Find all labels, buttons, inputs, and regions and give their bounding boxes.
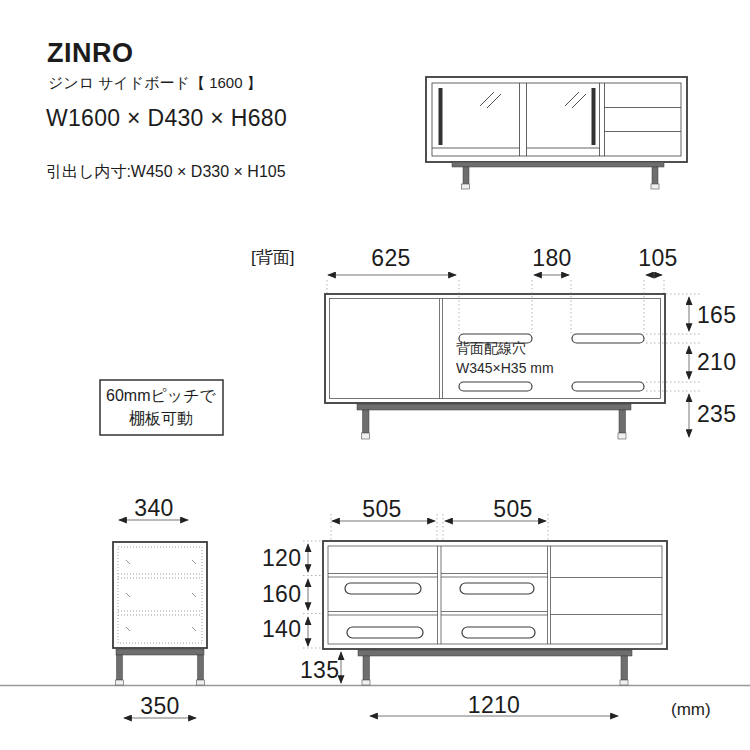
product-illustration (426, 77, 687, 189)
dim-235: 235 (697, 403, 736, 426)
shelf-note-line1: 60mmピッチで (106, 388, 216, 404)
illustration-legs (452, 162, 664, 189)
dim-625: 625 (371, 247, 410, 270)
back-view-drawing (325, 275, 700, 439)
side-view-legs (116, 649, 205, 685)
dim-1210: 1210 (468, 694, 520, 717)
dim-120: 120 (262, 547, 301, 570)
back-view-label: [背面] (251, 249, 294, 266)
dim-105: 105 (638, 247, 677, 270)
cable-hole-note-line1: 背面配線穴 (456, 341, 526, 355)
unit-label: (mm) (671, 701, 711, 718)
door-handle (592, 88, 596, 145)
dim-165: 165 (697, 304, 736, 327)
dim-140: 140 (262, 618, 301, 641)
dim-350: 350 (140, 695, 179, 718)
door-handle (439, 88, 443, 145)
dim-135: 135 (300, 659, 339, 682)
side-view-drawing (113, 520, 207, 718)
dim-160: 160 (262, 583, 301, 606)
dim-505-left: 505 (362, 498, 401, 521)
brand-title: ZINRO (47, 40, 134, 67)
back-view-legs (357, 404, 631, 439)
front-view-cabinet (323, 541, 667, 649)
product-subtitle: ジンロ サイドボード【 1600 】 (48, 75, 262, 90)
drawer-inner-dimensions: 引出し内寸:W450 × D330 × H105 (46, 164, 286, 180)
front-view-legs (358, 650, 632, 685)
shelf-note-line2: 棚板可動 (129, 411, 193, 427)
cable-hole-note-line2: W345×H35 mm (456, 361, 554, 375)
dim-180: 180 (532, 247, 571, 270)
overall-dimensions: W1600 × D430 × H680 (46, 107, 287, 130)
illustration-cabinet-body (426, 77, 687, 162)
dim-210: 210 (697, 351, 736, 374)
side-view-cabinet (113, 542, 207, 648)
spec-sheet-page: ZINRO ジンロ サイドボード【 1600 】 W1600 × D430 × … (0, 0, 750, 750)
dim-340: 340 (134, 497, 173, 520)
dim-505-right: 505 (493, 498, 532, 521)
